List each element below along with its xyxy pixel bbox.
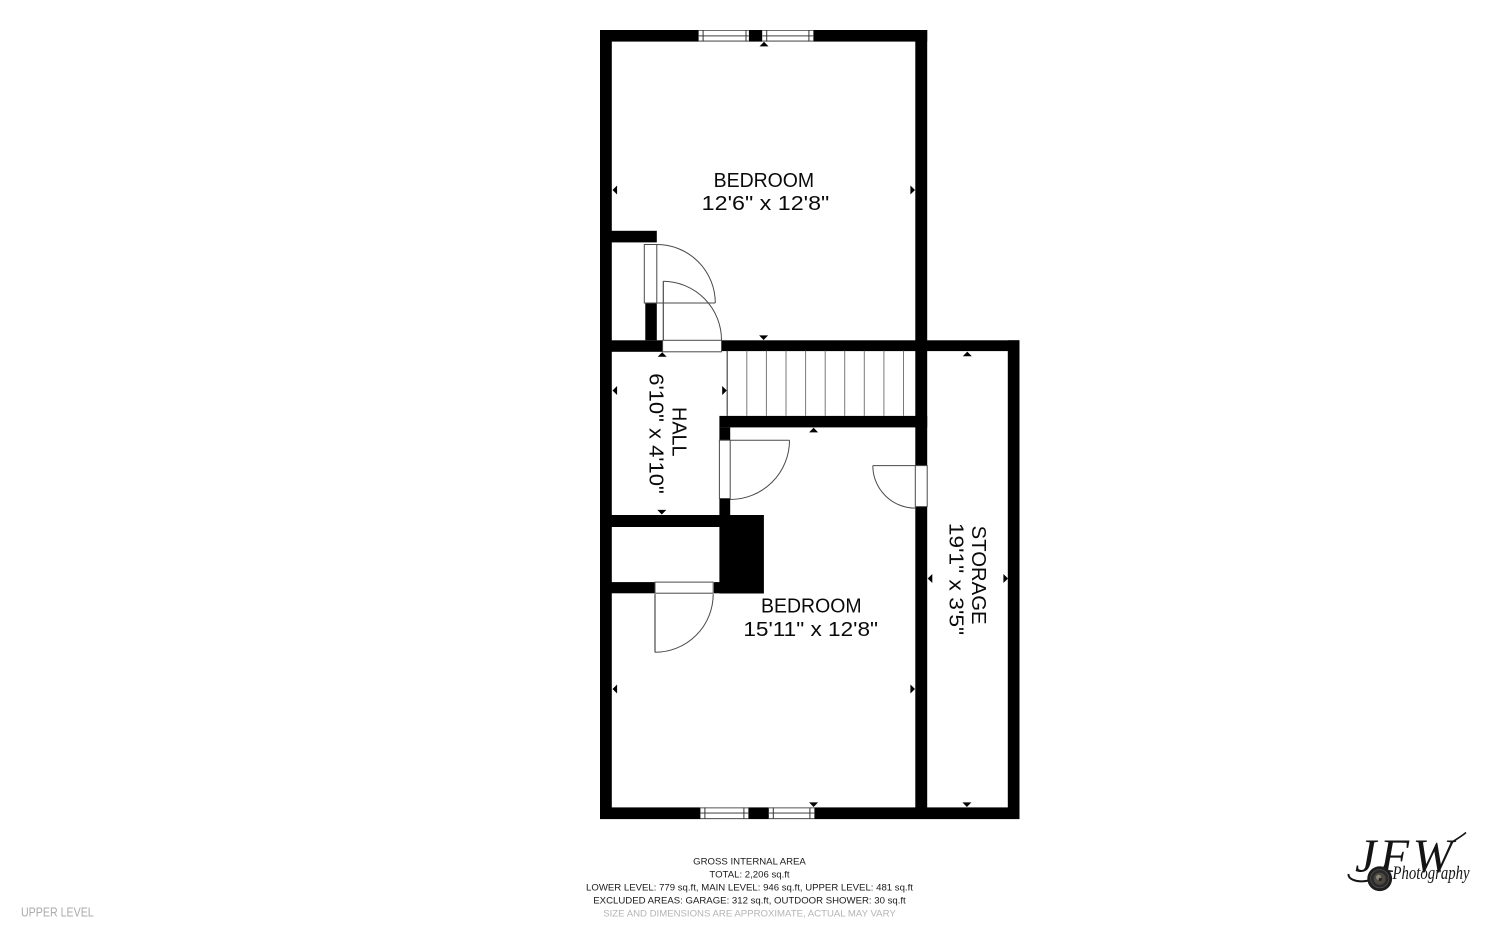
svg-text:SIZE AND DIMENSIONS ARE APPROX: SIZE AND DIMENSIONS ARE APPROXIMATE, ACT… bbox=[603, 909, 896, 920]
svg-text:6'10" x 4'10": 6'10" x 4'10" bbox=[645, 373, 668, 494]
svg-text:LOWER LEVEL: 779 sq.ft, MAIN L: LOWER LEVEL: 779 sq.ft, MAIN LEVEL: 946 … bbox=[586, 883, 913, 894]
svg-text:15'11" x 12'8": 15'11" x 12'8" bbox=[743, 618, 878, 641]
svg-text:TOTAL: 2,206 sq.ft: TOTAL: 2,206 sq.ft bbox=[709, 870, 789, 881]
svg-text:STORAGE: STORAGE bbox=[967, 526, 990, 625]
svg-text:BEDROOM: BEDROOM bbox=[761, 595, 862, 618]
svg-text:UPPER LEVEL: UPPER LEVEL bbox=[21, 905, 94, 920]
svg-text:19'1" x 3'5": 19'1" x 3'5" bbox=[945, 523, 968, 635]
svg-text:BEDROOM: BEDROOM bbox=[714, 169, 815, 192]
svg-text:HALL: HALL bbox=[668, 407, 691, 457]
svg-text:Photography: Photography bbox=[1392, 863, 1470, 884]
svg-text:12'6" x 12'8": 12'6" x 12'8" bbox=[702, 192, 830, 215]
svg-text:EXCLUDED AREAS: GARAGE: 312 sq: EXCLUDED AREAS: GARAGE: 312 sq.ft, OUTDO… bbox=[593, 896, 906, 907]
svg-text:GROSS INTERNAL AREA: GROSS INTERNAL AREA bbox=[693, 857, 806, 868]
